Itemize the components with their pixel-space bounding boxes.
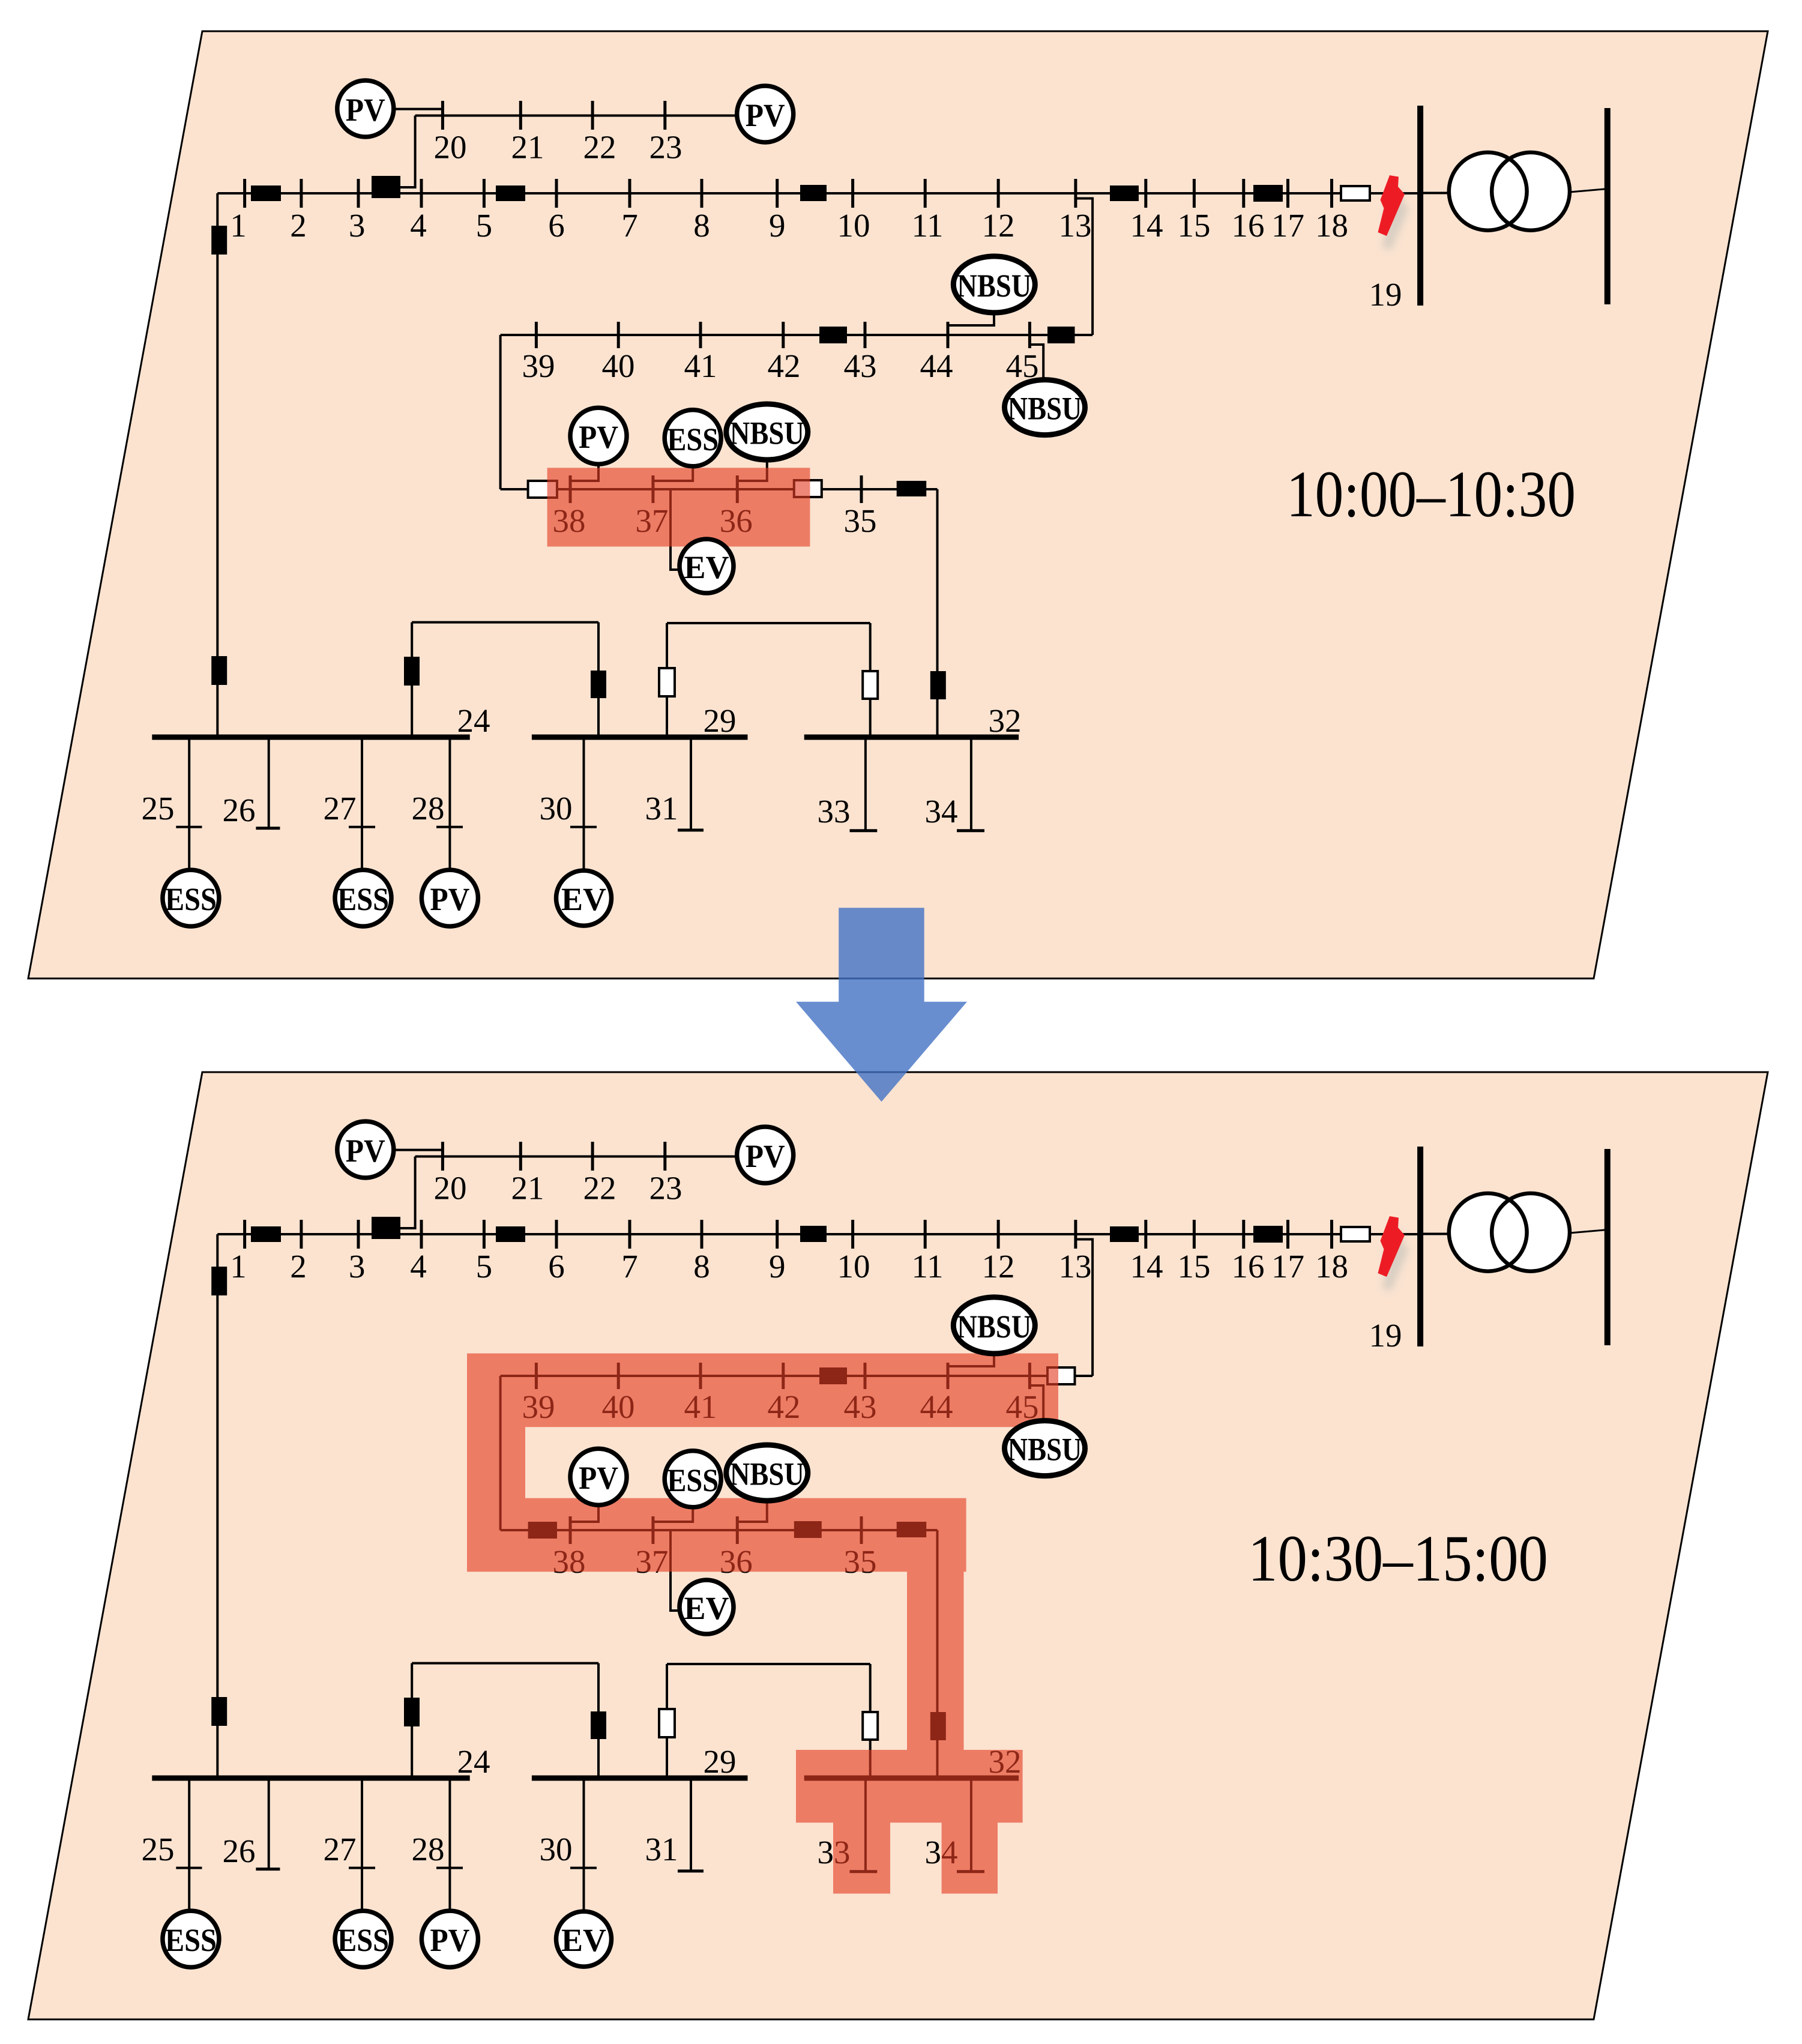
svg-text:28: 28: [412, 1831, 445, 1868]
svg-text:34: 34: [925, 793, 958, 830]
svg-text:18: 18: [1315, 1248, 1348, 1285]
svg-text:32: 32: [989, 702, 1022, 739]
svg-text:30: 30: [540, 1831, 573, 1868]
svg-text:24: 24: [457, 702, 490, 739]
svg-text:27: 27: [324, 790, 357, 827]
svg-text:27: 27: [324, 1831, 357, 1868]
svg-text:21: 21: [511, 1170, 544, 1207]
svg-text:NBSU: NBSU: [957, 1309, 1031, 1345]
svg-text:10:30–15:00: 10:30–15:00: [1248, 1522, 1548, 1595]
svg-text:15: 15: [1178, 207, 1211, 244]
svg-text:19: 19: [1369, 276, 1402, 313]
svg-text:8: 8: [693, 207, 710, 244]
svg-text:8: 8: [693, 1248, 710, 1285]
svg-text:11: 11: [912, 207, 944, 244]
svg-text:11: 11: [912, 1248, 944, 1285]
svg-text:3: 3: [349, 1248, 366, 1285]
svg-text:5: 5: [476, 1248, 493, 1285]
svg-text:16: 16: [1232, 1248, 1265, 1285]
svg-text:21: 21: [511, 129, 544, 166]
svg-text:NBSU: NBSU: [1008, 391, 1082, 427]
svg-text:44: 44: [920, 348, 953, 384]
svg-text:ESS: ESS: [165, 1922, 217, 1958]
svg-text:43: 43: [844, 348, 877, 384]
svg-text:NBSU: NBSU: [730, 415, 804, 451]
svg-text:16: 16: [1232, 207, 1265, 244]
svg-text:6: 6: [548, 1248, 565, 1285]
svg-text:26: 26: [223, 1833, 256, 1869]
svg-text:13: 13: [1059, 207, 1092, 244]
svg-text:1: 1: [230, 1248, 247, 1285]
svg-text:31: 31: [645, 1831, 678, 1868]
svg-text:22: 22: [583, 129, 616, 166]
svg-text:ESS: ESS: [667, 1462, 719, 1498]
svg-text:41: 41: [684, 348, 717, 384]
svg-text:5: 5: [476, 207, 493, 244]
svg-text:40: 40: [602, 348, 635, 384]
svg-text:PV: PV: [346, 1133, 385, 1169]
svg-text:18: 18: [1315, 207, 1348, 244]
svg-text:PV: PV: [746, 1138, 785, 1174]
svg-text:25: 25: [142, 1831, 175, 1868]
svg-text:26: 26: [223, 792, 256, 828]
svg-text:17: 17: [1271, 1248, 1304, 1285]
svg-text:14: 14: [1130, 207, 1163, 244]
svg-text:ESS: ESS: [337, 1922, 389, 1958]
svg-text:15: 15: [1178, 1248, 1211, 1285]
svg-text:ESS: ESS: [667, 421, 719, 457]
svg-text:20: 20: [434, 1170, 467, 1207]
svg-text:14: 14: [1130, 1248, 1163, 1285]
svg-text:10: 10: [837, 1248, 870, 1285]
svg-text:EV: EV: [561, 881, 606, 917]
svg-text:NBSU: NBSU: [730, 1456, 804, 1492]
svg-text:25: 25: [142, 790, 175, 827]
svg-text:20: 20: [434, 129, 467, 166]
svg-text:3: 3: [349, 207, 366, 244]
svg-text:PV: PV: [579, 419, 618, 455]
svg-text:4: 4: [410, 207, 427, 244]
svg-text:2: 2: [290, 1248, 307, 1285]
svg-text:24: 24: [457, 1743, 490, 1780]
svg-text:10: 10: [837, 207, 870, 244]
svg-text:PV: PV: [430, 881, 469, 917]
svg-text:35: 35: [844, 502, 877, 539]
svg-text:17: 17: [1271, 207, 1304, 244]
svg-text:23: 23: [649, 129, 683, 166]
svg-text:6: 6: [548, 207, 565, 244]
svg-text:9: 9: [769, 1248, 786, 1285]
svg-text:10:00–10:30: 10:00–10:30: [1286, 457, 1576, 531]
svg-text:EV: EV: [684, 549, 729, 585]
svg-text:PV: PV: [430, 1922, 469, 1958]
svg-text:12: 12: [982, 1248, 1015, 1285]
svg-text:1: 1: [230, 207, 247, 244]
svg-text:42: 42: [768, 348, 801, 384]
svg-text:PV: PV: [746, 97, 785, 133]
svg-text:28: 28: [412, 790, 445, 827]
svg-text:4: 4: [410, 1248, 427, 1285]
svg-text:13: 13: [1059, 1248, 1092, 1285]
svg-text:12: 12: [982, 207, 1015, 244]
svg-text:7: 7: [621, 1248, 638, 1285]
svg-text:ESS: ESS: [337, 881, 389, 917]
svg-text:2: 2: [290, 207, 307, 244]
svg-text:22: 22: [583, 1170, 616, 1207]
svg-text:PV: PV: [579, 1460, 618, 1496]
svg-text:EV: EV: [561, 1922, 606, 1958]
svg-text:33: 33: [818, 793, 851, 830]
svg-text:EV: EV: [684, 1590, 729, 1626]
svg-text:19: 19: [1369, 1317, 1402, 1354]
svg-text:NBSU: NBSU: [1008, 1432, 1082, 1468]
svg-text:39: 39: [522, 348, 555, 384]
svg-text:23: 23: [649, 1170, 683, 1207]
svg-text:7: 7: [621, 207, 638, 244]
svg-text:30: 30: [540, 790, 573, 827]
svg-text:9: 9: [769, 207, 786, 244]
svg-text:ESS: ESS: [165, 881, 217, 917]
svg-text:NBSU: NBSU: [957, 268, 1031, 304]
svg-text:PV: PV: [346, 92, 385, 128]
svg-text:31: 31: [645, 790, 678, 827]
svg-text:29: 29: [704, 702, 737, 739]
svg-text:29: 29: [704, 1743, 737, 1780]
